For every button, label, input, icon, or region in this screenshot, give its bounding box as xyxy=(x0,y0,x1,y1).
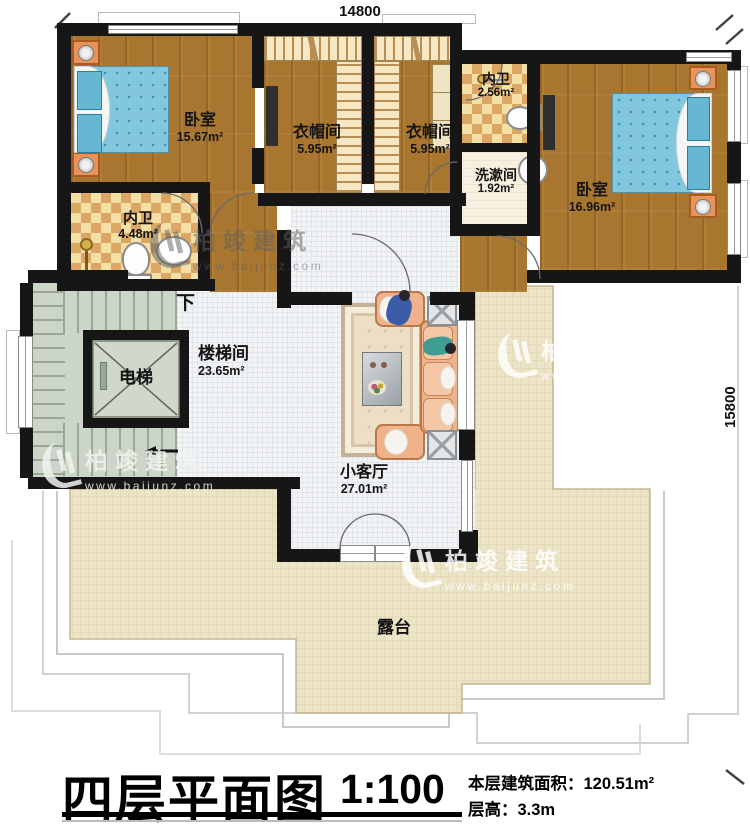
wall xyxy=(28,477,300,489)
wall xyxy=(252,36,264,88)
brand-logo-icon xyxy=(493,328,538,382)
room-label-bedroom-left: 卧室15.67m² xyxy=(158,112,242,145)
wall xyxy=(198,182,210,291)
nightstand-icon xyxy=(689,194,717,218)
floor-area-label: 本层建筑面积： xyxy=(468,775,584,793)
wall xyxy=(277,292,352,305)
french-door-panel xyxy=(375,545,410,562)
bed-pillow xyxy=(687,97,710,141)
room-label-closet-left: 衣帽间5.95m² xyxy=(275,124,359,157)
sofa-pillow xyxy=(440,366,456,390)
wall xyxy=(459,428,475,460)
floor-lamp-icon xyxy=(80,238,93,251)
title-underline-thin xyxy=(62,820,462,822)
wall xyxy=(283,549,340,562)
watermark-brand: 柏竣建筑 xyxy=(541,332,671,366)
room-label-stairwell: 楼梯间23.65m² xyxy=(198,344,294,378)
window xyxy=(727,70,741,142)
watermark-url: www.baijunz.com xyxy=(541,369,671,383)
dimension-right: 15800 xyxy=(722,333,739,428)
table-decor xyxy=(381,362,387,368)
floor-height-text: 层高：3.3m xyxy=(468,796,555,820)
plan-scale: 1:100 xyxy=(340,766,445,813)
window xyxy=(18,336,33,428)
window xyxy=(686,52,732,62)
room-label-elevator: 电梯 xyxy=(101,368,171,388)
wall xyxy=(258,193,466,206)
stair-treads xyxy=(63,285,177,333)
table-decor xyxy=(370,362,376,368)
sofa-pillow xyxy=(440,402,456,426)
floor-height-value: 3.3m xyxy=(518,801,556,819)
hall-wood-floor xyxy=(460,236,527,292)
side-table-icon xyxy=(427,430,457,460)
watermark-url: www.baijunz.com xyxy=(445,579,575,593)
room-label-bath-left: 内卫4.48m² xyxy=(96,210,180,242)
bed-pillow xyxy=(77,114,102,153)
room-label-bath-top: 内卫2.56m² xyxy=(460,72,532,99)
person-head xyxy=(399,290,410,301)
wall xyxy=(459,292,475,322)
room-label-terrace: 露台 xyxy=(358,618,430,638)
stair-direction-label: 下 xyxy=(176,288,195,315)
floor-area-text: 本层建筑面积：120.51m² xyxy=(468,770,654,794)
person-head xyxy=(445,343,456,354)
wall xyxy=(362,36,374,184)
dimension-top: 14800 xyxy=(300,3,420,20)
wall xyxy=(252,148,264,184)
room-label-living: 小客厅27.01m² xyxy=(322,464,406,497)
title-underline xyxy=(62,812,462,817)
room-label-washroom: 洗漱间1.92m² xyxy=(458,168,534,195)
room-label-closet-right: 衣帽间5.95m² xyxy=(388,124,472,157)
coffee-table-icon xyxy=(362,352,402,406)
bed-pillow xyxy=(687,146,710,190)
wall xyxy=(68,182,210,193)
bed-pillow xyxy=(77,71,102,110)
floor-height-label: 层高： xyxy=(468,801,518,819)
nightstand-icon xyxy=(72,152,100,177)
stair-treads xyxy=(33,285,65,475)
floor-area-value: 120.51m² xyxy=(584,775,655,793)
nightstand-icon xyxy=(689,66,717,90)
room-label-bedroom-right: 卧室16.96m² xyxy=(550,182,634,215)
window xyxy=(457,320,475,430)
flower-decor-icon xyxy=(368,380,386,395)
window xyxy=(108,25,238,34)
watermark: 柏竣建筑www.baijunz.com xyxy=(498,332,671,383)
window xyxy=(727,183,741,255)
french-door-panel xyxy=(340,545,375,562)
window xyxy=(461,460,473,532)
closet-rack-icon xyxy=(264,36,362,61)
corridor-floor xyxy=(210,193,277,292)
wall xyxy=(527,270,740,283)
armchair-cushion xyxy=(384,429,408,455)
hall-floor xyxy=(291,206,460,292)
stair-treads xyxy=(63,423,177,476)
wall xyxy=(28,270,128,283)
closet-rack-icon xyxy=(374,36,458,61)
wall xyxy=(57,23,71,291)
wall xyxy=(410,549,478,562)
floor-plan: 柏竣建筑www.baijunz.com 柏竣建筑www.baijunz.com … xyxy=(0,0,750,835)
nightstand-icon xyxy=(72,40,100,65)
